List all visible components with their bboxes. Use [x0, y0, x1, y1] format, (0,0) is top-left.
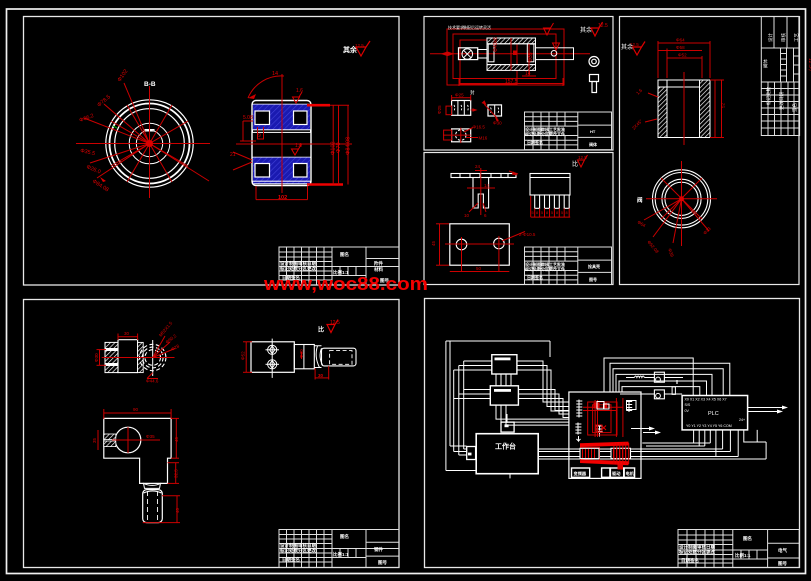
svg-text:12.5▽: 12.5▽ [807, 58, 811, 72]
svg-text:Φ52: Φ52 [241, 351, 246, 360]
svg-text:图名: 图名 [340, 251, 349, 258]
svg-text:Φ35: Φ35 [528, 52, 534, 62]
svg-text:标记处数分区更改: 标记处数分区更改 [279, 265, 316, 272]
svg-text:标记处数分区更改文件: 标记处数分区更改文件 [524, 130, 565, 136]
svg-text:B-B: B-B [144, 81, 156, 88]
svg-text:32.5: 32.5 [174, 469, 179, 478]
svg-text:阼件: 阼件 [374, 260, 383, 267]
svg-text:比例1:1: 比例1:1 [735, 552, 751, 559]
svg-text:阀: 阀 [637, 196, 643, 204]
svg-text:1.6: 1.6 [296, 88, 303, 94]
svg-text:拴具壳: 拴具壳 [588, 263, 600, 269]
svg-text:14: 14 [525, 71, 531, 77]
svg-text:5.08: 5.08 [243, 115, 253, 121]
svg-text:变频器: 变频器 [574, 470, 587, 477]
svg-text:标记处数分区更改: 标记处数分区更改 [678, 549, 715, 556]
svg-text:5: 5 [551, 211, 553, 215]
svg-text:2-Φ10.5: 2-Φ10.5 [519, 232, 536, 237]
svg-text:设计: 设计 [767, 33, 774, 42]
svg-text:装配后运转灵活: 装配后运转灵活 [463, 24, 491, 30]
svg-text:日期签名: 日期签名 [282, 556, 300, 563]
svg-text:30: 30 [124, 331, 130, 336]
svg-text:封: 封 [470, 89, 475, 95]
svg-text:阀体: 阀体 [762, 59, 769, 68]
svg-text:14: 14 [484, 183, 490, 188]
svg-text:14: 14 [272, 71, 278, 77]
svg-text:12.5: 12.5 [355, 43, 364, 48]
svg-text:5: 5 [532, 211, 534, 215]
svg-text:8: 8 [566, 211, 568, 215]
svg-text:Φ58: Φ58 [676, 45, 685, 50]
svg-text:Φ40k6: Φ40k6 [493, 37, 499, 52]
svg-text:40: 40 [175, 507, 180, 513]
svg-text:Φ25: Φ25 [437, 105, 442, 114]
svg-text:PLC: PLC [708, 411, 719, 417]
svg-text:Φ64: Φ64 [676, 38, 685, 43]
svg-text:更改日期: 更改日期 [778, 92, 785, 110]
svg-text:8: 8 [556, 211, 558, 215]
svg-text:其余: 其余 [621, 43, 633, 51]
svg-text:50: 50 [476, 266, 482, 271]
svg-text:12.5: 12.5 [578, 155, 587, 160]
svg-text:标记处数分区更改文件: 标记处数分区更改文件 [524, 265, 565, 271]
svg-text:157.5: 157.5 [505, 79, 518, 85]
svg-text:日期签名: 日期签名 [527, 139, 543, 145]
svg-text:电机: 电机 [626, 470, 635, 477]
svg-text:工艺: 工艺 [794, 33, 799, 42]
svg-text:技术要求: 技术要求 [448, 24, 464, 30]
svg-text:0V: 0V [685, 409, 690, 413]
svg-text:102: 102 [278, 195, 287, 201]
svg-text:比: 比 [572, 160, 578, 168]
svg-text:X0 X1 X2 X3 X4 X5 X6 X7: X0 X1 X2 X3 X4 X5 X6 X7 [685, 398, 727, 402]
svg-text:10: 10 [464, 213, 470, 218]
svg-text:驱动: 驱动 [612, 470, 621, 477]
svg-text:Φ30: Φ30 [299, 349, 304, 358]
svg-text:标记处数分区更改: 标记处数分区更改 [279, 547, 316, 554]
svg-text:日期签名: 日期签名 [527, 274, 543, 280]
svg-text:12.5: 12.5 [330, 320, 340, 326]
svg-text:Φ35: Φ35 [146, 434, 155, 439]
svg-text:S/S: S/S [685, 403, 691, 407]
svg-text:钢件: 钢件 [374, 546, 383, 553]
svg-text:阀体: 阀体 [589, 141, 598, 147]
svg-text:材料: 材料 [374, 266, 383, 273]
svg-text:Y0 Y1 Y2 Y3 Y4 Y5 Y6 COM: Y0 Y1 Y2 Y3 Y4 Y5 Y6 COM [686, 424, 732, 428]
svg-text:www,woc88.com: www,woc88.com [263, 274, 428, 294]
svg-text:9: 9 [258, 133, 261, 139]
svg-text:Φ30: Φ30 [493, 121, 502, 126]
svg-text:5: 5 [541, 211, 543, 215]
svg-text:45: 45 [431, 240, 436, 246]
svg-text:M16: M16 [479, 136, 488, 141]
svg-text:45: 45 [174, 436, 179, 442]
svg-text:35: 35 [92, 437, 97, 443]
svg-text:8: 8 [546, 211, 548, 215]
svg-text:标记处数: 标记处数 [765, 87, 772, 105]
svg-text:图名: 图名 [340, 533, 349, 540]
svg-text:图号: 图号 [589, 276, 597, 282]
svg-text:Φ30: Φ30 [94, 353, 99, 362]
svg-text:Φ84.08: Φ84.08 [346, 137, 352, 155]
svg-text:审核: 审核 [780, 33, 787, 42]
svg-text:Φ70: Φ70 [336, 142, 342, 153]
svg-text:30: 30 [318, 373, 324, 378]
svg-text:5: 5 [561, 211, 563, 215]
svg-text:图号: 图号 [778, 560, 787, 567]
svg-text:21: 21 [230, 152, 236, 158]
svg-text:12.5: 12.5 [598, 23, 608, 29]
svg-text:其余: 其余 [580, 26, 592, 34]
svg-text:工作台: 工作台 [495, 442, 516, 451]
svg-text:1.6: 1.6 [295, 143, 302, 149]
svg-text:8: 8 [536, 211, 538, 215]
svg-text:Φ44.6: Φ44.6 [146, 379, 159, 384]
svg-text:52: 52 [721, 102, 726, 108]
svg-text:比: 比 [318, 326, 324, 334]
svg-text:日期签名: 日期签名 [681, 557, 699, 564]
svg-text:比例1:1: 比例1:1 [333, 551, 349, 558]
svg-text:24: 24 [475, 164, 481, 169]
svg-text:Φ16.5: Φ16.5 [473, 125, 486, 130]
svg-text:图名: 图名 [743, 535, 752, 542]
svg-text:图号: 图号 [378, 559, 387, 566]
svg-text:90: 90 [133, 407, 139, 412]
svg-text:Φ52: Φ52 [678, 53, 687, 58]
svg-text:24+: 24+ [739, 418, 745, 422]
svg-text:HT: HT [590, 129, 596, 134]
svg-text:Φ25: Φ25 [455, 93, 464, 98]
svg-text:签名: 签名 [791, 103, 798, 112]
svg-text:电气: 电气 [778, 547, 787, 554]
